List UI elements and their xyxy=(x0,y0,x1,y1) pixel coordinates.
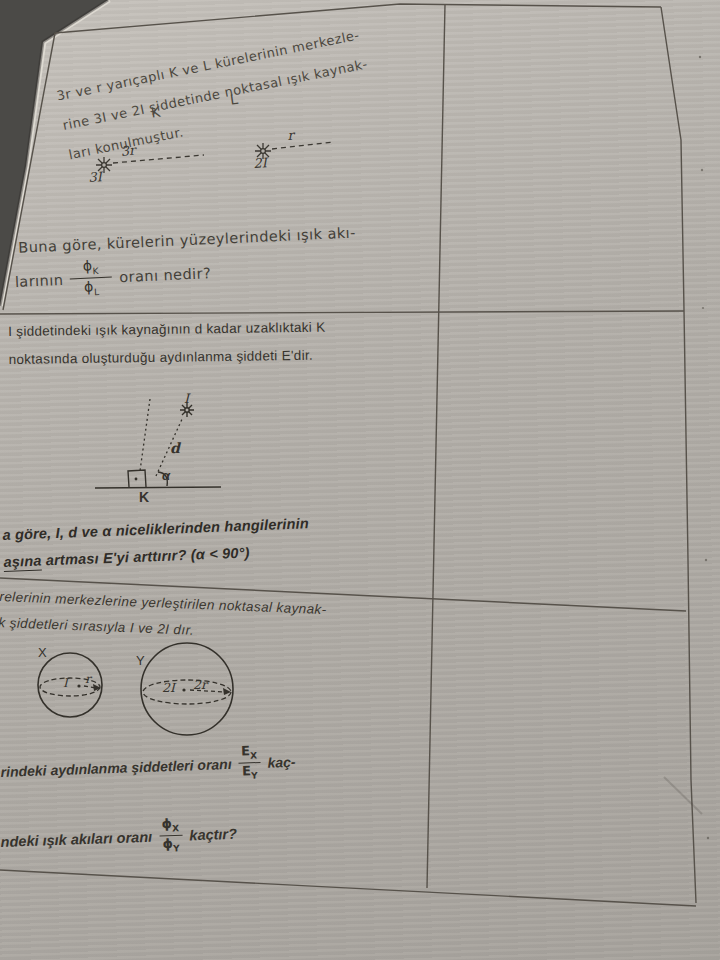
q3-question2-suffix: kaçtır? xyxy=(189,825,237,843)
q2-source-label: I xyxy=(184,391,189,406)
q1-flux-ratio-fraction: ϕK ϕL xyxy=(69,257,113,300)
q2-point-label: K xyxy=(139,489,149,505)
worksheet-photo: 3r ve r yarıçaplı K ve L kürelerinin mer… xyxy=(0,0,720,960)
y-radius-label: 2r xyxy=(193,677,207,692)
y-source-label: 2I xyxy=(162,680,175,695)
q3-intensity-denominator: EY xyxy=(239,762,261,783)
sphere-y-label: Y xyxy=(136,653,145,668)
q3-flux-ratio-fraction: ϕX ϕY xyxy=(158,816,183,856)
q3-question1-prefix: rindeki aydınlanma şiddetleri oranı xyxy=(0,755,231,779)
k-radius-label: 3r xyxy=(120,142,136,158)
x-source-label: I xyxy=(63,676,68,690)
q2-statement-line2: noktasında oluşturduğu aydınlanma şiddet… xyxy=(8,342,326,374)
l-radius-label: r xyxy=(287,128,294,143)
q1-question-suffix: oranı nedir? xyxy=(119,265,212,285)
q3-flux-denominator: ϕY xyxy=(159,835,183,856)
q2-statement-line1: I şiddetindeki ışık kaynağının d kadar u… xyxy=(8,314,326,346)
q3-flux-numerator: ϕX xyxy=(158,816,182,836)
x-radius-label: r xyxy=(85,672,91,686)
q2-question-line2-rest: artması E'yi arttırır? (α < 90°) xyxy=(41,545,250,569)
l-source-label: 2I xyxy=(253,155,267,171)
q2-underlined-word: aşına xyxy=(3,553,42,572)
q3-question2-prefix: ndeki ışık akıları oranı xyxy=(0,828,152,849)
q3-question1-suffix: kaç- xyxy=(267,753,296,770)
k-source-label: 3I xyxy=(88,169,102,185)
q2-distance-label: d xyxy=(170,440,180,456)
sphere-k-label: K xyxy=(150,104,162,121)
q3-intensity-numerator: EX xyxy=(238,743,260,763)
q1-fraction-numerator: ϕK xyxy=(69,257,112,279)
sphere-x-label: X xyxy=(38,645,47,660)
q2-statement: I şiddetindeki ışık kaynağının d kadar u… xyxy=(8,314,326,374)
q2-angle-label: α xyxy=(162,468,170,483)
q3-intensity-ratio-fraction: EX EY xyxy=(238,743,261,783)
q1-question-prefix: larının xyxy=(15,272,64,290)
q1-fraction-denominator: ϕL xyxy=(70,277,113,300)
q3-question2: ndeki ışık akıları oranı ϕX ϕY kaçtır? xyxy=(0,814,238,861)
